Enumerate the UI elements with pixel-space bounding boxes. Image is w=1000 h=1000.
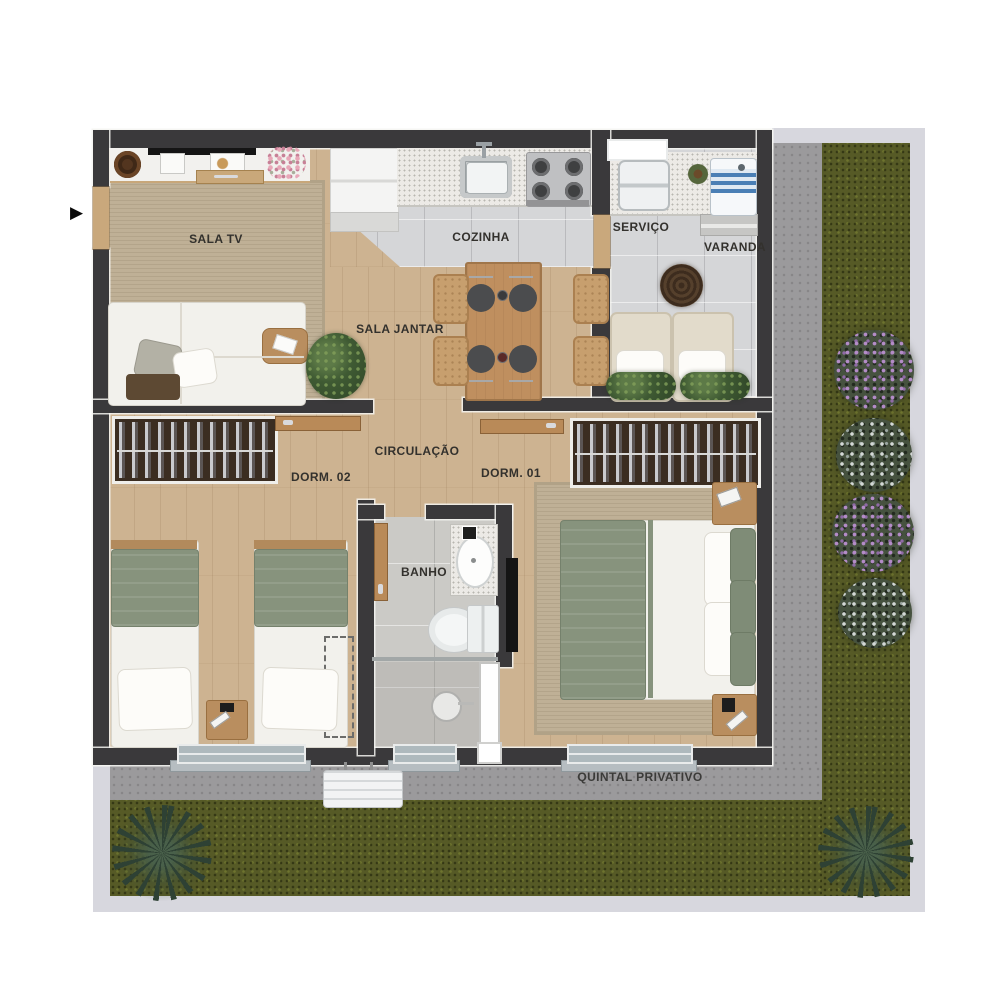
entrance-arrow-icon: ▶: [70, 203, 88, 223]
corridor-window: [393, 744, 457, 764]
dining-chair: [573, 274, 609, 324]
flower-bush: [836, 418, 912, 492]
bed-duvet: [560, 520, 646, 700]
door-handle: [283, 420, 293, 425]
floor-plan: ▶ SALA TV COZINHA SERVIÇO VARANDA SALA J…: [0, 0, 1000, 1000]
bed-head-shelf: [254, 540, 346, 549]
flower-vase: [266, 145, 306, 181]
bed-cushion: [730, 632, 756, 686]
room-label-cozinha: COZINHA: [452, 230, 509, 244]
cutlery: [509, 276, 533, 278]
toilet-tank: [467, 605, 499, 653]
concrete-path-right: [772, 143, 822, 800]
servico-doorway: [594, 215, 610, 268]
entrance-doorway: [93, 187, 109, 249]
wall-top: [93, 130, 772, 148]
faucet-bar: [476, 142, 492, 146]
cutlery: [509, 380, 533, 382]
room-label-servico: SERVIÇO: [613, 220, 670, 234]
room-label-varanda: VARANDA: [704, 240, 766, 254]
room-label-sala-jantar: SALA JANTAR: [356, 322, 444, 336]
fridge: [330, 148, 399, 214]
dining-chair: [433, 274, 469, 324]
room-label-dorm-01: DORM. 01: [481, 466, 541, 480]
counter-plant: [688, 164, 708, 184]
shower-window: [479, 662, 500, 750]
room-label-dorm-02: DORM. 02: [291, 470, 351, 484]
flower-bush: [838, 578, 912, 648]
shower-head: [431, 691, 462, 722]
room-label-sala-tv: SALA TV: [189, 232, 243, 246]
decor-frame: [160, 153, 185, 174]
cutlery: [469, 276, 493, 278]
wall-dorm02-bath: [358, 500, 374, 755]
bed-blanket: [111, 549, 199, 627]
dorm02-wardrobe: [112, 416, 278, 484]
stove-burner: [565, 158, 583, 176]
speaker: [722, 698, 735, 712]
laundry-tank: [618, 160, 670, 211]
alarm-radio: [220, 703, 234, 712]
bed-pillow: [261, 667, 339, 732]
varanda-plants: [606, 372, 676, 400]
bed-cushion: [730, 580, 756, 636]
grass-bottom: [110, 800, 822, 896]
terrain-edge-right: [910, 128, 925, 912]
place-setting: [467, 345, 495, 373]
room-label-quintal: QUINTAL PRIVATIVO: [577, 770, 702, 784]
ac-unit: [323, 770, 403, 808]
bed-cushion: [730, 528, 756, 584]
wall-bath-top: [358, 505, 384, 519]
wine-glass: [497, 290, 508, 301]
stove-burner: [532, 158, 550, 176]
washer-knob: [738, 164, 745, 171]
shower-arm: [458, 702, 474, 705]
place-setting: [509, 345, 537, 373]
potted-plant: [306, 333, 366, 399]
stove-burner: [565, 182, 583, 200]
wall-left: [93, 130, 109, 187]
place-setting: [467, 284, 495, 312]
flower-bush: [832, 494, 914, 572]
dining-chair: [433, 336, 469, 386]
wine-glass: [497, 352, 508, 363]
sofa-throw: [126, 374, 180, 400]
terrain-edge-bottom: [93, 896, 925, 912]
place-setting: [509, 284, 537, 312]
dorm01-window: [567, 744, 693, 764]
bed-pillow: [117, 667, 193, 732]
varanda-plants: [680, 372, 750, 400]
room-label-circulacao: CIRCULAÇÃO: [375, 444, 460, 458]
kitchen-sink-basin: [466, 162, 508, 194]
cutlery: [469, 380, 493, 382]
vanity-decor: [462, 526, 477, 540]
stove-front: [526, 200, 589, 206]
bath-window: [477, 742, 502, 764]
dining-chair: [573, 336, 609, 386]
wall-left: [93, 249, 109, 765]
agave-plant: [112, 805, 212, 901]
dorm02-window: [177, 744, 306, 764]
door-handle: [378, 584, 383, 594]
flower-bush: [834, 330, 914, 410]
sink-drain: [471, 558, 476, 563]
agave-plant: [818, 806, 914, 898]
stove-burner: [532, 182, 550, 200]
decor-basket: [114, 151, 141, 178]
washing-machine: [710, 158, 757, 216]
kitchen-lower-cabinet: [330, 212, 399, 232]
faucet: [482, 144, 486, 158]
bed-head-shelf: [111, 540, 197, 549]
drawer-handle: [214, 175, 238, 178]
wall-tv: [506, 558, 518, 652]
bed-sheet-fold: [648, 520, 653, 698]
bed-blanket: [254, 549, 348, 627]
round-pouf: [660, 264, 703, 307]
shower-glass-divider: [372, 657, 498, 661]
terrain-edge-top-right: [772, 128, 925, 143]
terrain-edge-left: [93, 757, 110, 896]
servico-window: [607, 139, 668, 161]
door-handle: [546, 423, 556, 428]
servico-shelf: [700, 214, 758, 236]
room-label-banho: BANHO: [401, 565, 447, 579]
dorm01-wardrobe: [570, 418, 761, 488]
